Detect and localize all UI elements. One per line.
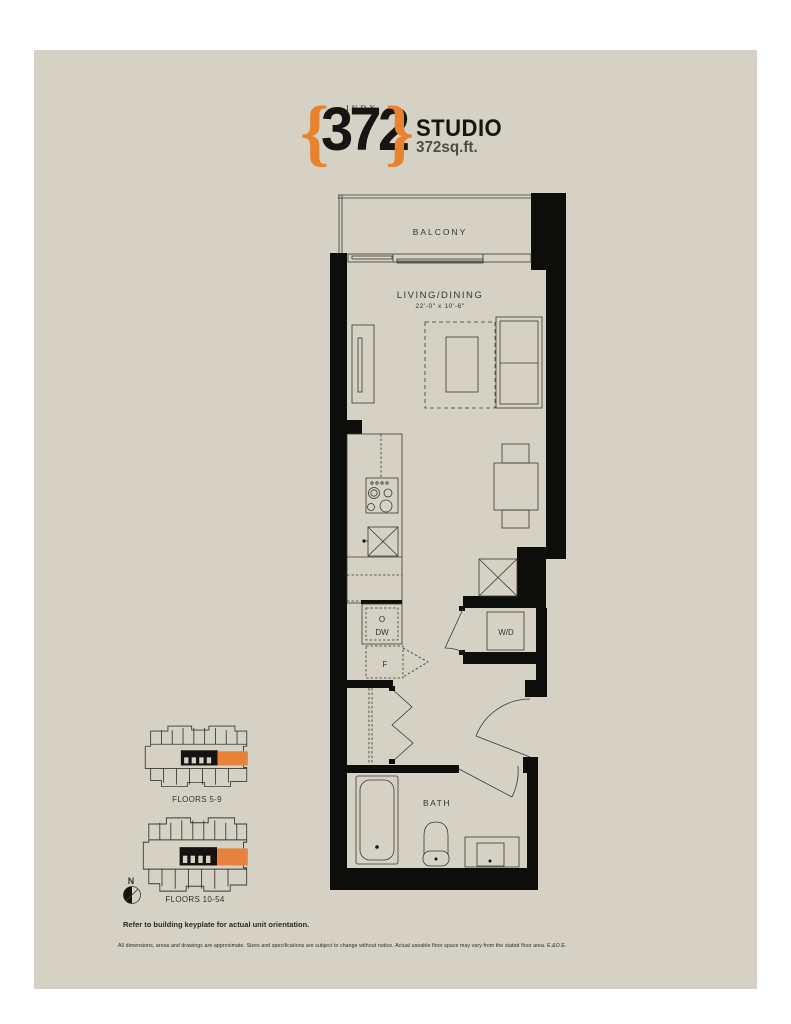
- keyplate1-label: FLOORS 5-9: [172, 795, 222, 804]
- right-brace: }: [385, 96, 414, 170]
- shaft-box: [479, 559, 517, 596]
- living-dining-dims: 22'-0" x 10'-6": [415, 303, 464, 310]
- keyplate2-label: FLOORS 10-54: [165, 895, 224, 904]
- oven-label: O: [379, 615, 385, 624]
- door-arc: [512, 766, 518, 797]
- fridge-label: F: [383, 660, 388, 669]
- north-compass-icon: N: [124, 876, 141, 904]
- door-leaf: [445, 609, 463, 648]
- cooktop-icon: [366, 478, 398, 513]
- door-leaf: [476, 736, 530, 757]
- hall-closet: [369, 686, 413, 764]
- kitchen-counter: [347, 434, 402, 603]
- keyplates: FLOORS 5-9 FLOORS 10-54 N: [100, 715, 260, 910]
- door-arc: [476, 699, 530, 736]
- vanity-sink-icon: [465, 837, 519, 867]
- keyplate-floors-5-9: [145, 726, 248, 787]
- toilet-icon: [423, 822, 449, 866]
- fridge: F: [366, 646, 428, 678]
- bathtub-icon: [356, 776, 398, 864]
- door-leaf: [459, 769, 512, 797]
- dining-chair: [502, 510, 529, 528]
- north-label: N: [128, 876, 135, 886]
- dining-table: [494, 444, 538, 528]
- living-dining-label: LIVING/DINING: [397, 290, 484, 301]
- keyplate-floors-10-54: [143, 818, 248, 891]
- balcony-label: BALCONY: [413, 227, 468, 237]
- counter-end-wall: [361, 600, 402, 604]
- tv-unit: [352, 325, 374, 403]
- washer-dryer-label: W/D: [498, 628, 514, 637]
- bath-label: BATH: [423, 798, 451, 808]
- washer-dryer-closet: W/D: [445, 606, 524, 655]
- floor-plan: BALCONY LIV: [320, 185, 570, 895]
- sink-icon: [362, 527, 398, 556]
- dining-chair: [502, 444, 529, 463]
- page: INDX { 372 } STUDIO 372sq.ft. BALCONY: [0, 0, 791, 1024]
- disclaimer-text: All dimensions, areas and drawings are a…: [118, 943, 567, 949]
- balcony-sliding-door: [348, 254, 531, 263]
- rug-outline: [425, 322, 495, 408]
- oven-dishwasher: O DW: [362, 604, 402, 644]
- bath-door: [459, 766, 518, 797]
- balcony-railing: [338, 195, 531, 253]
- dishwasher-label: DW: [375, 628, 389, 637]
- unit-area: 372sq.ft.: [416, 139, 478, 157]
- entry-door: [476, 699, 530, 757]
- orientation-note: Refer to building keyplate for actual un…: [123, 920, 309, 929]
- coffee-table: [446, 337, 478, 392]
- sofa: [496, 317, 542, 408]
